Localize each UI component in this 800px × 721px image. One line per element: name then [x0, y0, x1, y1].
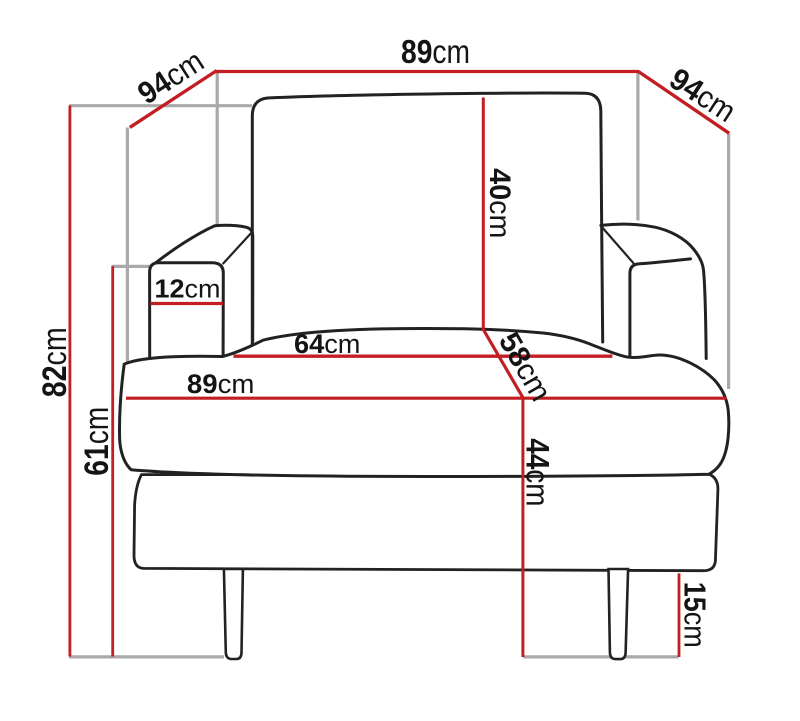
- svg-text:40cm: 40cm: [483, 168, 516, 238]
- svg-text:64cm: 64cm: [294, 329, 360, 359]
- svg-text:44cm: 44cm: [520, 438, 556, 506]
- svg-text:94cm: 94cm: [663, 61, 742, 129]
- svg-text:15cm: 15cm: [677, 582, 712, 648]
- svg-text:89cm: 89cm: [401, 33, 470, 70]
- svg-text:82cm: 82cm: [36, 327, 74, 397]
- svg-text:12cm: 12cm: [155, 273, 221, 303]
- svg-text:61cm: 61cm: [78, 407, 116, 476]
- svg-text:89cm: 89cm: [187, 369, 255, 399]
